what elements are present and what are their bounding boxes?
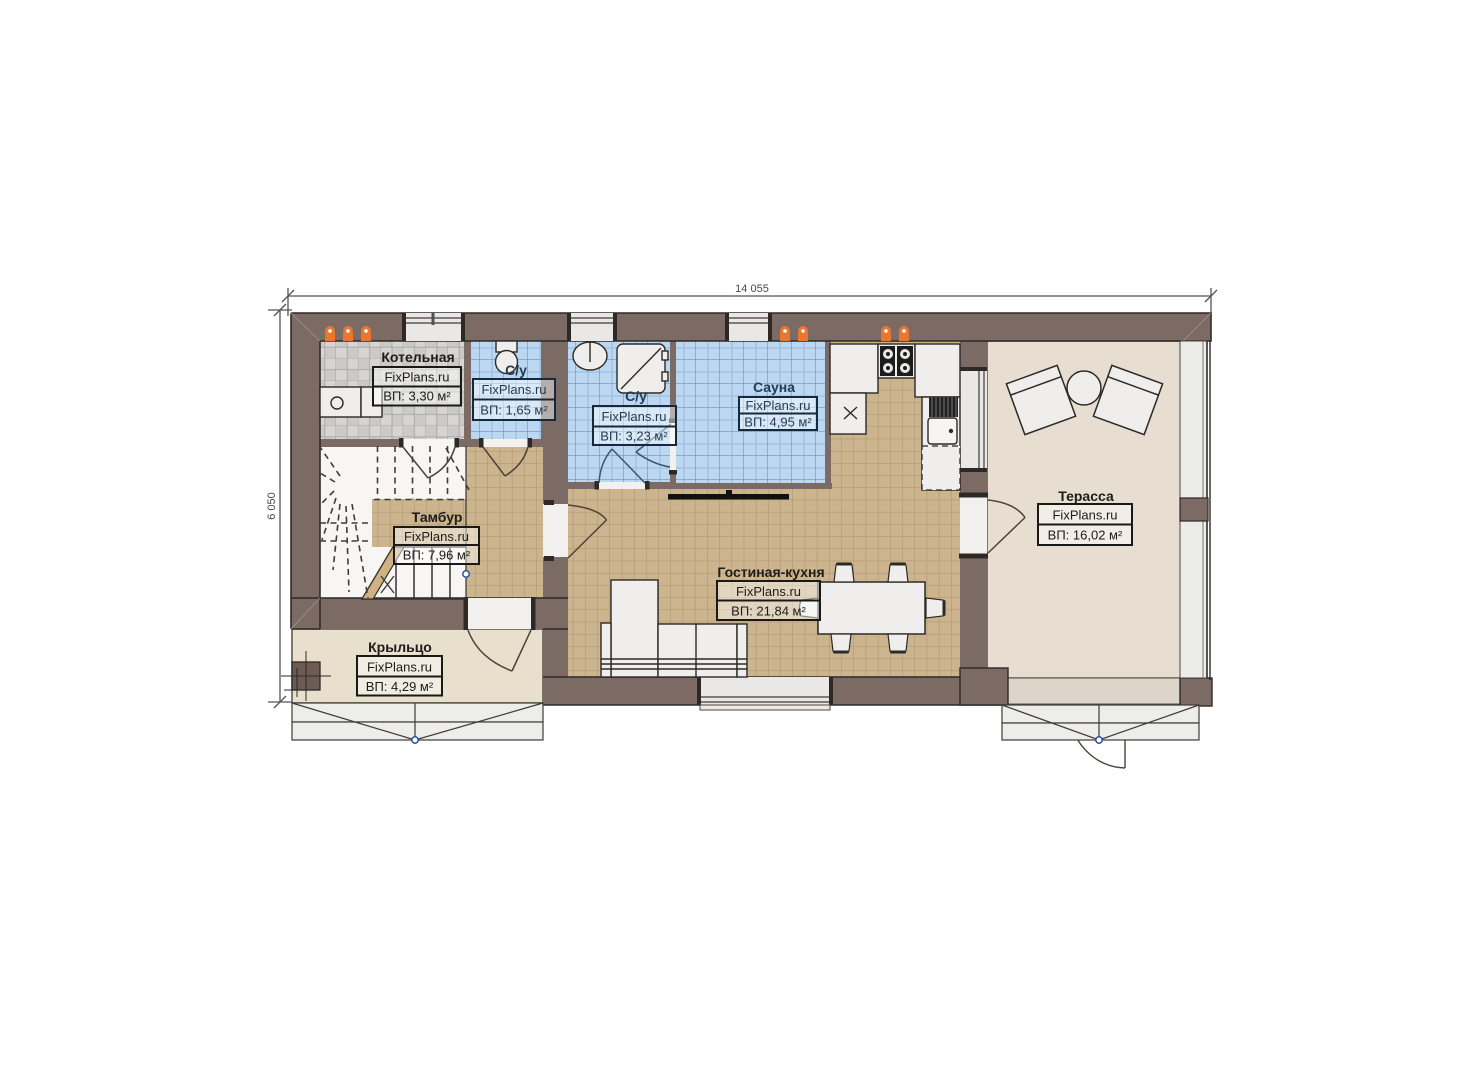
svg-text:Терасса: Терасса: [1058, 488, 1114, 504]
svg-text:14 055: 14 055: [735, 283, 769, 295]
svg-text:ВП: 16,02 м²: ВП: 16,02 м²: [1048, 528, 1123, 543]
svg-text:Гостиная-кухня: Гостиная-кухня: [717, 564, 824, 580]
svg-text:ВП: 3,30 м²: ВП: 3,30 м²: [383, 389, 451, 404]
svg-text:ВП: 4,95 м²: ВП: 4,95 м²: [744, 415, 812, 430]
svg-text:ВП: 4,29 м²: ВП: 4,29 м²: [366, 679, 434, 694]
svg-text:FixPlans.ru: FixPlans.ru: [384, 370, 449, 385]
svg-text:FixPlans.ru: FixPlans.ru: [736, 584, 801, 599]
svg-text:Тамбур: Тамбур: [412, 509, 463, 525]
svg-text:ВП: 21,84 м²: ВП: 21,84 м²: [731, 604, 806, 619]
svg-text:FixPlans.ru: FixPlans.ru: [367, 660, 432, 675]
svg-text:ВП: 7,96 м²: ВП: 7,96 м²: [403, 548, 471, 563]
svg-text:ВП: 3,23 м²: ВП: 3,23 м²: [600, 429, 668, 444]
svg-text:FixPlans.ru: FixPlans.ru: [1052, 508, 1117, 523]
svg-text:С/у: С/у: [625, 388, 647, 404]
svg-text:FixPlans.ru: FixPlans.ru: [745, 398, 810, 413]
svg-text:FixPlans.ru: FixPlans.ru: [601, 409, 666, 424]
svg-text:FixPlans.ru: FixPlans.ru: [481, 382, 546, 397]
svg-text:С/у: С/у: [505, 362, 527, 378]
svg-text:FixPlans.ru: FixPlans.ru: [404, 529, 469, 544]
svg-text:6 050: 6 050: [266, 492, 278, 520]
svg-text:ВП: 1,65 м²: ВП: 1,65 м²: [480, 403, 548, 418]
svg-text:Котельная: Котельная: [381, 349, 454, 365]
svg-text:Сауна: Сауна: [753, 379, 795, 395]
svg-text:Крыльцо: Крыльцо: [368, 639, 432, 655]
